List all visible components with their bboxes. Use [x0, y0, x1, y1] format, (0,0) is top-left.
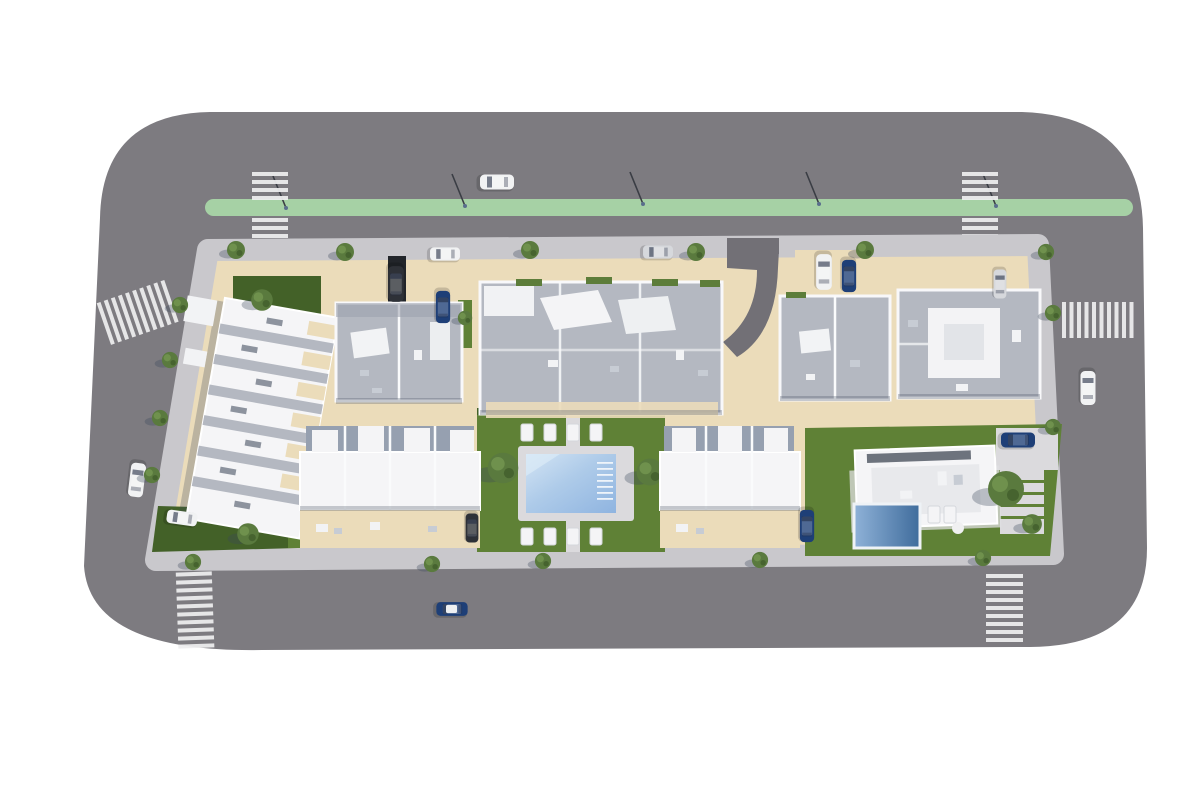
van-block3: [814, 250, 832, 289]
car-south-row2: [798, 507, 814, 543]
building-terraced-row-south-1: [300, 426, 480, 548]
aerial-render-canvas: [0, 0, 1200, 801]
car-parking-lane-2: [640, 245, 673, 260]
crosswalk-south-east: [986, 574, 1023, 642]
car-block3: [840, 257, 856, 293]
canopy: [183, 295, 217, 326]
van-block1: [386, 262, 404, 301]
communal-garden: [474, 408, 665, 552]
villa-private-pool: [854, 504, 920, 548]
parasol: [952, 522, 964, 534]
car-south-row1: [464, 511, 478, 543]
car-parking-lane-1: [427, 247, 460, 262]
building-apartment-north-2: [480, 277, 722, 418]
car-south-road: [433, 602, 468, 618]
car-block4: [992, 267, 1006, 299]
car-block1: [434, 288, 450, 324]
site-plan-render: [0, 0, 1200, 801]
car-north-road: [477, 175, 515, 192]
car-villa: [998, 433, 1036, 450]
car-east-road: [1079, 368, 1096, 406]
building-terraced-row-south-2: [660, 426, 800, 548]
building-apartment-north-4: [898, 290, 1040, 399]
